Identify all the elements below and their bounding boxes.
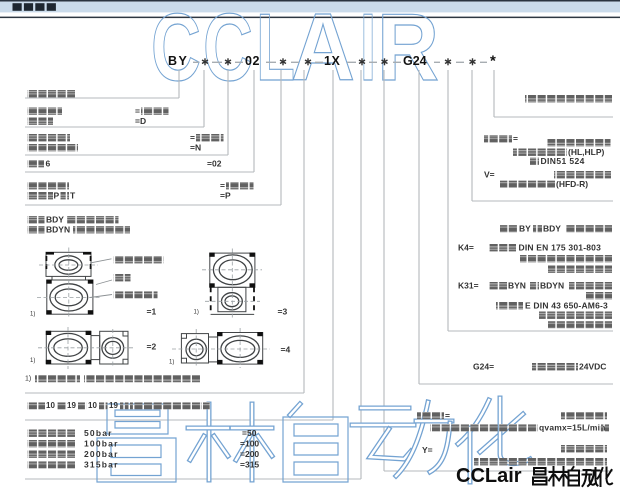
svg-text:=3: =3 <box>278 307 288 317</box>
svg-text:=200: =200 <box>240 449 259 459</box>
svg-text:E DIN 43 650-AM6-3: E DIN 43 650-AM6-3 <box>525 301 608 311</box>
svg-text:*: * <box>490 52 496 69</box>
svg-text:CCLair: CCLair <box>456 465 522 487</box>
svg-text:19: 19 <box>67 401 76 410</box>
svg-text:50bar: 50bar <box>84 428 113 438</box>
svg-text:A: A <box>291 0 355 101</box>
svg-text:=50: =50 <box>242 428 257 438</box>
svg-text:1): 1) <box>169 360 174 366</box>
svg-text:=: = <box>220 181 225 191</box>
svg-text:G24=: G24= <box>473 362 494 372</box>
svg-text:=1: =1 <box>147 307 157 317</box>
svg-text:=315: =315 <box>240 460 259 470</box>
svg-text:19: 19 <box>109 401 118 410</box>
svg-text:315bar: 315bar <box>84 460 119 470</box>
svg-text:6: 6 <box>46 159 51 169</box>
svg-text:=: = <box>445 411 450 421</box>
svg-text:1): 1) <box>30 312 35 318</box>
svg-text:=02: =02 <box>207 159 222 169</box>
svg-text:200bar: 200bar <box>84 449 119 459</box>
svg-text:P: P <box>54 191 60 201</box>
svg-text:=100: =100 <box>240 439 259 449</box>
svg-text:qvamx=15L/min: qvamx=15L/min <box>539 423 606 433</box>
svg-text:=4: =4 <box>281 345 291 355</box>
svg-text:DIN51 524: DIN51 524 <box>541 156 585 166</box>
svg-text:=N: =N <box>190 143 201 153</box>
svg-text:BY: BY <box>168 54 188 68</box>
svg-text:02: 02 <box>245 54 260 68</box>
svg-text:24VDC: 24VDC <box>579 362 606 372</box>
svg-text:1): 1) <box>194 310 199 316</box>
svg-text:DIN EN 175 301-803: DIN EN 175 301-803 <box>519 243 602 253</box>
svg-text:BY: BY <box>519 224 531 234</box>
svg-text:10: 10 <box>88 401 97 410</box>
svg-text:100bar: 100bar <box>84 439 119 449</box>
svg-text:=D: =D <box>135 116 146 126</box>
svg-text:K31=: K31= <box>458 281 479 291</box>
svg-text:=2: =2 <box>147 342 157 352</box>
svg-text:BDYN: BDYN <box>46 225 70 235</box>
svg-text:C: C <box>151 0 201 101</box>
svg-text:=: = <box>513 134 518 144</box>
svg-text:T: T <box>70 191 76 201</box>
svg-text:G24: G24 <box>403 54 427 68</box>
svg-text:1): 1) <box>30 358 35 364</box>
svg-text:L: L <box>256 0 295 101</box>
svg-text:BDYN: BDYN <box>540 281 564 291</box>
svg-text:1X: 1X <box>324 54 340 68</box>
svg-text:=: = <box>190 133 195 143</box>
svg-text:(HFD-R): (HFD-R) <box>556 179 588 189</box>
svg-text:I: I <box>360 0 376 101</box>
svg-text:BDY: BDY <box>46 215 64 225</box>
svg-text:V=: V= <box>484 170 495 180</box>
svg-text:BDY: BDY <box>543 224 561 234</box>
svg-text:R: R <box>377 0 439 101</box>
svg-text:Y=: Y= <box>422 445 433 455</box>
svg-text:BYN: BYN <box>508 281 526 291</box>
svg-text:K4=: K4= <box>458 243 474 253</box>
svg-text:=: = <box>135 106 140 116</box>
svg-text:10: 10 <box>46 401 55 410</box>
svg-text:=P: =P <box>220 191 231 201</box>
svg-text:1): 1) <box>25 375 31 382</box>
